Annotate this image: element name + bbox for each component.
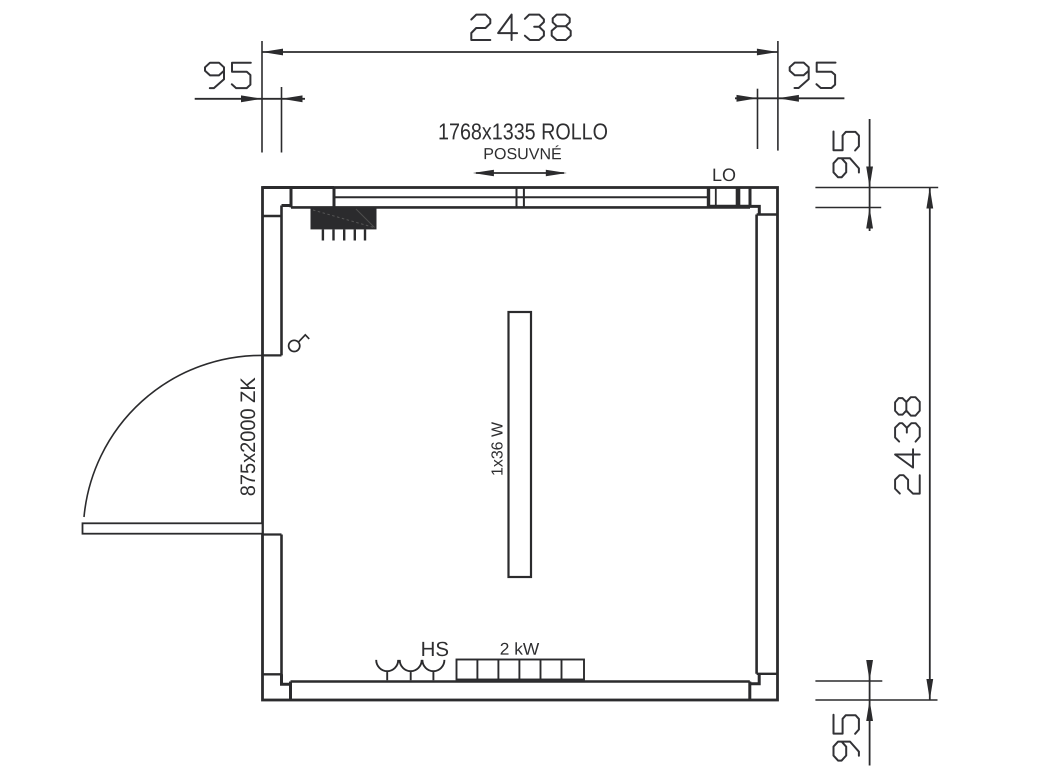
svg-text:POSUVNÉ: POSUVNÉ [483,145,562,163]
svg-text:HS: HS [421,638,449,661]
svg-text:LO: LO [712,165,736,185]
svg-text:875x2000 ZK: 875x2000 ZK [237,377,260,496]
svg-text:1768x1335 ROLLO: 1768x1335 ROLLO [438,118,608,144]
svg-text:2 kW: 2 kW [500,640,540,659]
svg-text:1x36 W: 1x36 W [490,421,507,476]
